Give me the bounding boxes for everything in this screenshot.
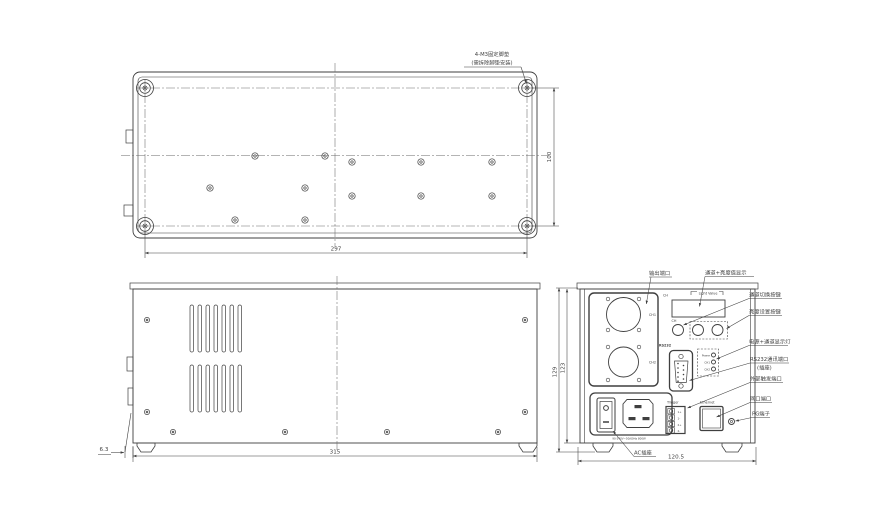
callouts: 输出端口 通道+亮度值显示 通道切换按键 亮度设置按键 电源+通道显示灯 RS2… — [613, 269, 791, 457]
foot-pads — [137, 80, 536, 235]
led-indicators: Power CH1 CH2 — [698, 349, 719, 376]
dim-height-label: 100 — [547, 151, 553, 162]
foot-pad-note: 4-M3固定脚垫 (需拆除脚垫安装) — [471, 50, 512, 67]
side-view: 6.3 315 — [98, 276, 540, 462]
trigger-pin-1p: 1+ — [678, 410, 682, 414]
callout-ethernet-label: 网口端口 — [750, 395, 771, 403]
callout-display: 通道+亮度值显示 — [700, 269, 755, 307]
callout-ac-label: AC插座 — [634, 449, 653, 457]
engineering-drawing-page: 4-M3固定脚垫 (需拆除脚垫安装) 297 100 — [0, 0, 888, 522]
switch-off-symbol — [604, 406, 609, 411]
channel-switch-button — [673, 325, 684, 336]
callout-trigger-label: 外部触发端口 — [750, 375, 782, 383]
dimension-rear-width: 120.5 — [578, 447, 756, 465]
iec-inlet — [623, 400, 653, 428]
dimension-width: 297 — [145, 231, 527, 258]
led-ch2-label: CH2 — [704, 367, 710, 371]
dim-rear-height-outer-label: 129 — [553, 366, 559, 377]
dim-rear-width-label: 120.5 — [668, 455, 684, 461]
ac-inlet-block: 90-240V~50/60Hz 800W — [590, 393, 672, 441]
pg-terminal — [729, 419, 735, 425]
screw-holes — [207, 153, 495, 223]
callout-pg: PG端子 — [736, 410, 771, 422]
callout-rs232-line2: (插座) — [757, 364, 772, 372]
callout-pg-label: PG端子 — [752, 410, 771, 418]
callout-indicator-label: 电源+通道显示灯 — [749, 338, 791, 346]
vent-slots — [190, 305, 242, 412]
dim-offset-label: 6.3 — [100, 447, 109, 453]
rs232-label: RS232 — [659, 344, 672, 348]
ch1-led — [712, 360, 716, 364]
button-ch-label: CH — [672, 319, 677, 323]
rs232-connector: RS232 — [659, 344, 693, 392]
led-ch1-label: CH1 — [704, 360, 710, 364]
top-view: 4-M3固定脚垫 (需拆除脚垫安装) 297 100 — [121, 50, 559, 258]
callout-brightness-set-label: 亮度设置按键 — [749, 308, 781, 316]
dimension-height: 100 — [532, 88, 559, 226]
dimension-offset: 6.3 — [98, 446, 133, 458]
db9-pins — [677, 363, 684, 382]
ch1-label: CH1 — [649, 313, 656, 317]
drawing-svg: 4-M3固定脚垫 (需拆除脚垫安装) 297 100 — [0, 0, 888, 522]
trigger-label: Trigger — [666, 401, 679, 405]
power-rating-text: 90-240V~50/60Hz 800W — [612, 437, 646, 441]
dim-width-label: 297 — [331, 247, 342, 253]
foot-pad-note-line2: (需拆除脚垫安装) — [471, 59, 512, 67]
dim-rear-height-inner-label: 123 — [561, 362, 567, 373]
button-group: CH — [672, 319, 728, 339]
callout-brightness-set: 亮度设置按键 — [727, 308, 783, 329]
foot-pad-note-line1: 4-M3固定脚垫 — [475, 50, 510, 58]
ethernet-label: Ethernet — [700, 401, 715, 405]
callout-channel-switch: 通道切换按键 — [684, 291, 783, 326]
callout-indicator: 电源+通道显示灯 — [717, 338, 792, 360]
output-connector-ch1 — [607, 298, 641, 332]
power-led — [712, 353, 716, 357]
brightness-display — [672, 300, 725, 317]
brightness-down-button — [712, 325, 723, 336]
callout-display-label: 通道+亮度值显示 — [705, 269, 747, 277]
led-power-label: Power — [702, 353, 711, 357]
trigger-pin-2p: 2+ — [678, 423, 682, 427]
callout-rs232-line1: RS232通讯端口 — [750, 355, 788, 363]
output-panel: CH1 CH2 — [589, 293, 658, 386]
rear-feet — [593, 443, 742, 452]
output-connector-ch2 — [609, 347, 639, 377]
dimension-rear-height-inner: 123 — [561, 289, 581, 443]
callout-output-port-label: 输出端口 — [649, 269, 670, 277]
brightness-up-button — [693, 325, 704, 336]
trigger-terminal: Trigger 1+ 1- 2+ 2- — [666, 401, 685, 434]
power-switch — [597, 398, 615, 432]
dimension-length: 315 — [133, 447, 537, 462]
display-group: CH Light Value — [663, 292, 725, 318]
rear-panel-view: CH1 CH2 CH Light Value CH RS232 — [553, 283, 759, 465]
display-ch-label: CH — [663, 294, 668, 298]
trigger-pin-1n: 1- — [678, 416, 681, 420]
ch2-label: CH2 — [649, 361, 656, 365]
dim-length-label: 315 — [330, 450, 341, 456]
ch2-led — [712, 367, 716, 371]
trigger-pin-2n: 2- — [678, 429, 681, 433]
callout-channel-switch-label: 通道切换按键 — [749, 291, 781, 299]
center-lines — [121, 63, 549, 247]
callout-output-port: 输出端口 — [646, 269, 672, 304]
